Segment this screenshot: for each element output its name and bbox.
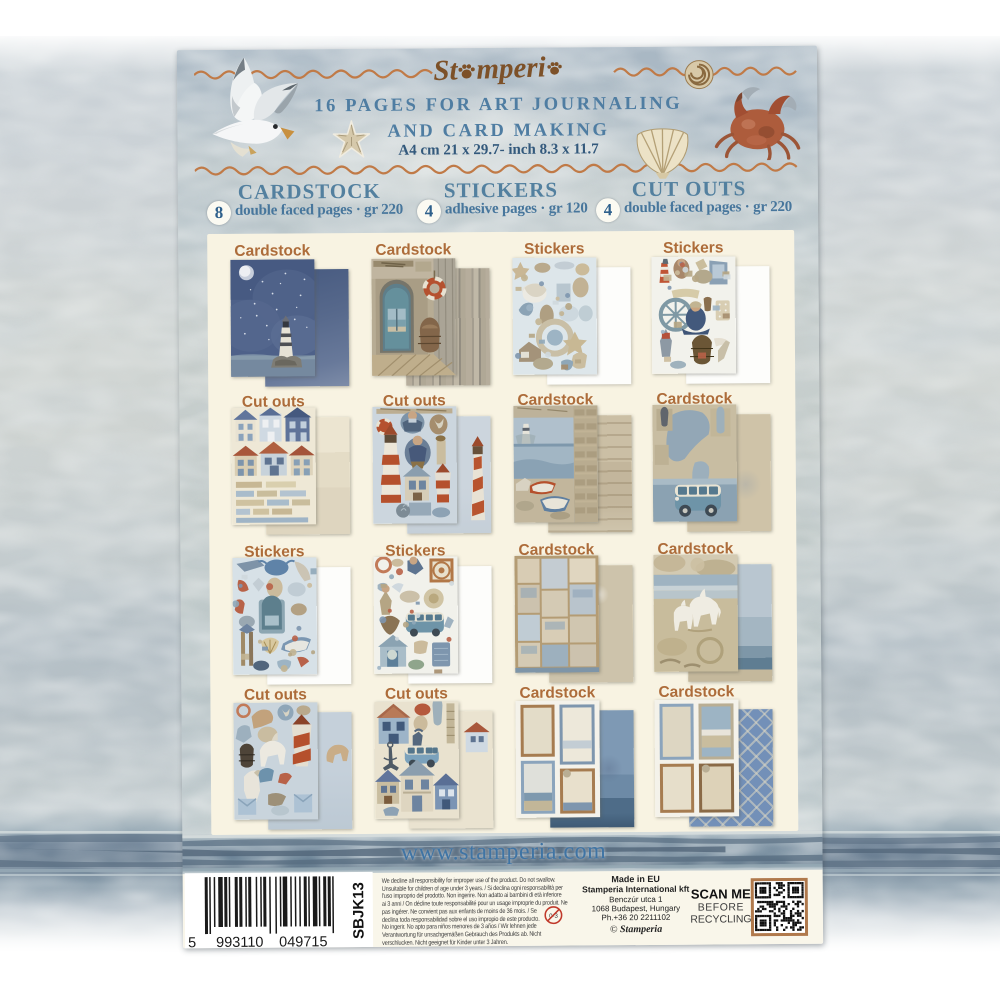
svg-text:5: 5 xyxy=(188,935,196,948)
svg-text:993110: 993110 xyxy=(216,935,263,949)
svg-text:049715: 049715 xyxy=(279,934,328,948)
